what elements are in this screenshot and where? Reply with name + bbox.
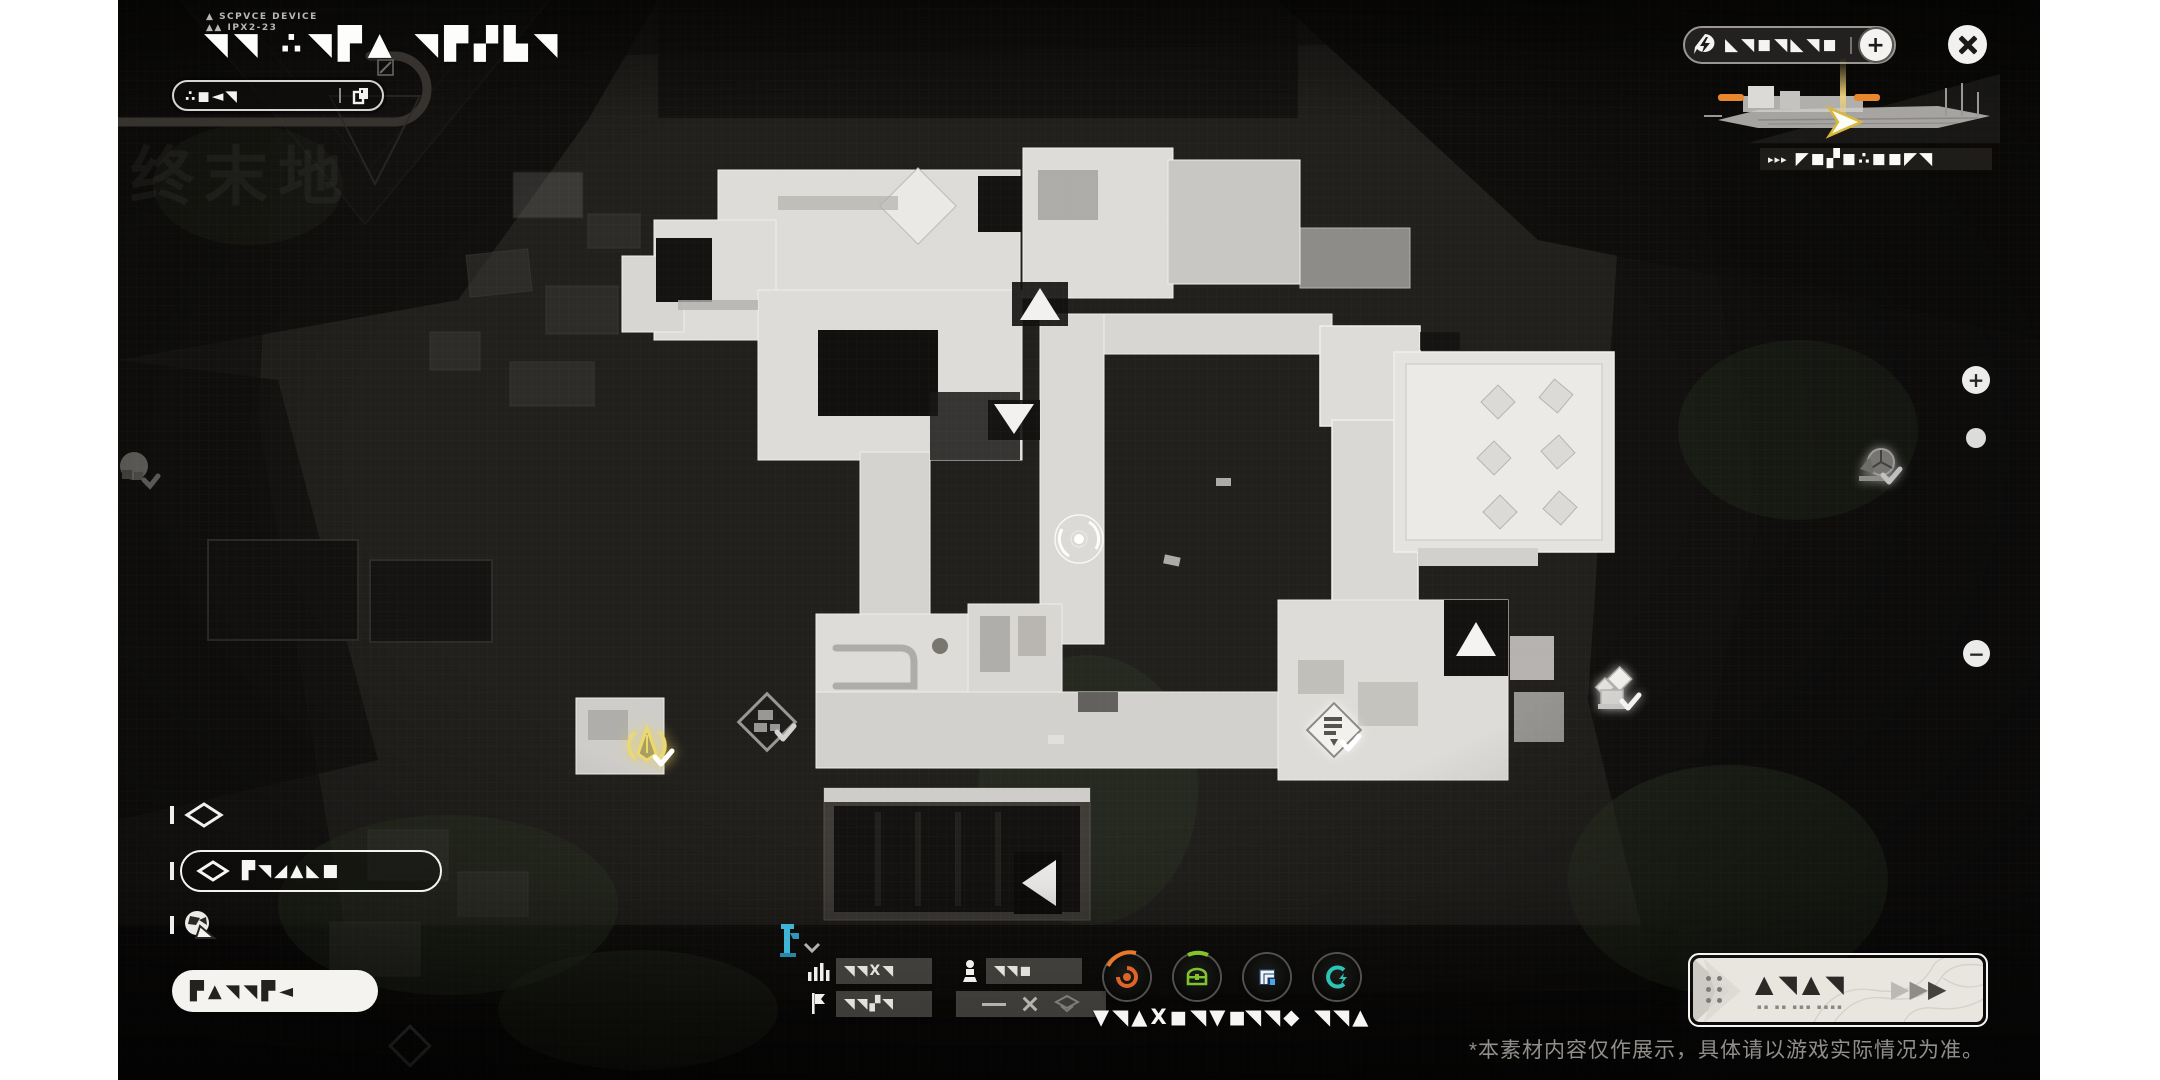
zoom-out-button[interactable]: −	[1963, 640, 1990, 667]
filter-box-resources[interactable]: ◥◥X◥	[836, 958, 932, 984]
bolt-bubble-icon	[1691, 31, 1719, 59]
add-resource-button[interactable]: +	[1860, 29, 1892, 61]
energy-glyph	[1324, 964, 1350, 990]
game-viewport[interactable]: 终末地 ▲ SCPVCE DEVICE ▲▲ IPX2-23 ◥◥ ∴◥▛▲ ◥…	[118, 0, 2040, 1080]
resource-icon-chest[interactable]	[1174, 954, 1220, 1000]
zoom-slider-handle[interactable]	[1966, 428, 1986, 448]
legend-tick	[170, 916, 174, 934]
map-name-pill[interactable]: ▛▲◥◥▛◄	[172, 970, 378, 1012]
resource-icon-energy[interactable]	[1314, 954, 1360, 1000]
filter-box-landmarks[interactable]: ◥◥◼	[986, 958, 1082, 984]
filter-box-tools[interactable]	[956, 991, 1106, 1017]
ship-label: ▸▸▸ ◤◼▞◼∴◼◼◤◥	[1760, 148, 1992, 170]
progress-arc-green	[1168, 948, 1226, 1006]
forward-arrows-icon: ▶▶▶	[1891, 975, 1946, 1003]
flag-icon[interactable]	[806, 991, 830, 1017]
triangle-icon: ▲	[206, 12, 219, 22]
confirm-button[interactable]: ▲◥▲◥ ▪▪ ▪▪ ▪▪▪ ▪▪▪▪ ▶▶▶	[1688, 953, 1988, 1027]
map-filters: ◥◥X◥ ◥◥◼ ◥◥▞◥	[806, 958, 1106, 1017]
progress-arc-orange	[1098, 948, 1156, 1006]
beacon-beam	[1840, 58, 1846, 120]
statue-icon[interactable]	[960, 958, 980, 984]
map-name-label: ▛▲◥◥▛◄	[190, 981, 297, 1002]
resource-pill-label: ◣◥◼◥◣◥◼	[1725, 35, 1840, 55]
legend-tick	[170, 806, 174, 824]
orange-dash	[1718, 94, 1744, 101]
header-decoration	[118, 40, 578, 200]
selected-region-label: ▛◥◢▲◣■	[242, 861, 341, 881]
resource-caption-right: ◥◥▲	[1314, 1005, 1371, 1029]
region-rock-icon[interactable]	[182, 908, 218, 944]
orange-dash	[1854, 94, 1880, 101]
ship-panel: ▸▸▸ ◤◼▞◼∴◼◼◤◥	[1688, 58, 2010, 178]
copy-icon	[351, 86, 371, 106]
page-title: ◥◥ ∴◥▛▲ ◥▛▞▙◥	[204, 26, 564, 62]
chevron-down-icon[interactable]	[802, 942, 822, 954]
close-icon	[1958, 35, 1978, 55]
grip-dots	[1706, 976, 1722, 1003]
divider	[339, 88, 341, 103]
divider	[1850, 37, 1852, 54]
resource-icon-ore[interactable]	[1104, 954, 1150, 1000]
player-marker	[1055, 515, 1103, 563]
selected-region-pill[interactable]: ▛◥◢▲◣■	[180, 850, 442, 892]
tracker-pill[interactable]: ∴◼◄◥	[172, 80, 384, 111]
disclaimer-text: *本素材内容仅作展示，具体请以游戏实际情况为准。	[1469, 1034, 1984, 1064]
minus-icon	[982, 1003, 1006, 1006]
building-dark-garage	[824, 788, 1090, 920]
legend-tick	[170, 862, 174, 880]
clear-icon	[1022, 996, 1038, 1012]
maze-glyph	[1254, 964, 1280, 990]
confirm-sublabel: ▪▪ ▪▪ ▪▪▪ ▪▪▪▪	[1757, 1003, 1844, 1011]
tracked-resources	[1104, 954, 1360, 1000]
arrows-icon: ▸▸▸	[1768, 153, 1788, 166]
filter-box-flags[interactable]: ◥◥▞◥	[836, 991, 932, 1017]
resource-icon-data[interactable]	[1244, 954, 1290, 1000]
confirm-label: ▲◥▲◥	[1755, 970, 1849, 998]
zoom-in-button[interactable]: +	[1962, 366, 1990, 394]
pump-icon[interactable]	[778, 922, 804, 960]
region-diamond-icon	[196, 860, 230, 882]
resource-caption-mid: ◥◥◆	[1245, 1005, 1302, 1029]
tracker-label: ∴◼◄◥	[185, 87, 239, 105]
bar-chart-icon[interactable]	[806, 958, 830, 984]
region-diamond-icon[interactable]	[184, 802, 224, 828]
stack-collapse-icon	[1054, 995, 1080, 1013]
resource-caption-main: ▼◥▲X◼◥▼◼	[1093, 1005, 1249, 1029]
